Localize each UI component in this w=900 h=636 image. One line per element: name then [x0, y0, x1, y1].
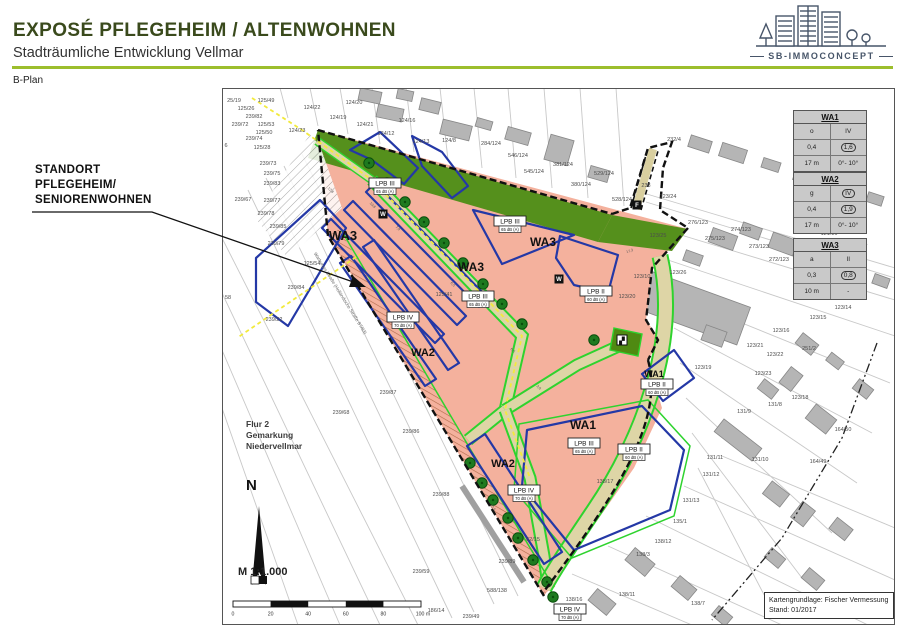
parcel-number: 164/50	[835, 427, 852, 433]
parcel-number: 239/84	[288, 285, 305, 291]
credit-line: Stand: 01/2017	[769, 606, 889, 616]
legend-cell: 0,3	[794, 268, 830, 283]
noise-db-label: 60 dB (A)	[625, 455, 643, 460]
zone-label-wa2: WA2	[491, 458, 515, 470]
legend-cell: 10 m	[794, 284, 830, 299]
parcel-number: 131/10	[752, 457, 769, 463]
parcel-number: 131/12	[703, 472, 720, 478]
parcel-number: 138/3	[636, 552, 650, 558]
parcel-number: 239/85	[270, 224, 287, 230]
annotation-line: PFLEGEHEIM/	[35, 178, 152, 193]
noise-db-label: 65 dB (A)	[575, 449, 593, 454]
map-credit-box: Kartengrundlage: Fischer Vermessung Stan…	[764, 592, 894, 619]
logo-line-right	[879, 56, 893, 57]
annotation-line: SENIORENWOHNEN	[35, 193, 152, 208]
parcel-number: 273/123	[749, 244, 769, 250]
parcel-number: 239/82	[246, 114, 263, 120]
parcel-number: 125/49	[258, 98, 275, 104]
parcel-number: 124/12	[378, 131, 395, 137]
credit-line: Kartengrundlage: Fischer Vermessung	[769, 596, 889, 606]
legend-cell: o	[794, 124, 830, 139]
scale-tick: 40	[305, 612, 311, 618]
parcel-number: 239/59	[413, 569, 430, 575]
legend-cell: 1,6	[830, 140, 867, 155]
parcel-number: 123/16	[773, 328, 790, 334]
header-divider	[12, 66, 893, 69]
parcel-number: 284/124	[481, 141, 501, 147]
scale-tick: 80	[381, 612, 387, 618]
scale-bar	[233, 601, 421, 607]
parcel-number: 123/19	[695, 365, 712, 371]
legend-table-wa2: WA2gIV0,41,917 m0°- 10°	[793, 172, 867, 234]
page-title: EXPOSÉ PFLEGEHEIM / ALTENWOHNEN	[13, 20, 396, 42]
noise-db-label: 70 dB (A)	[515, 496, 533, 501]
legend-cell: 0,4	[794, 140, 830, 155]
parcel-number: 239/77	[264, 198, 281, 204]
parcel-number: 239/75	[264, 171, 281, 177]
parcel-number: 123/25	[650, 233, 667, 239]
standort-annotation: STANDORT PFLEGEHEIM/ SENIORENWOHNEN	[35, 163, 152, 208]
legend-table-title: WA1	[794, 111, 866, 124]
page-subtitle: Stadträumliche Entwicklung Vellmar	[13, 45, 244, 61]
legend-cell: 0°- 10°	[830, 156, 867, 171]
parcel-number: 138/7	[691, 601, 705, 607]
parcel-number: 131/11	[707, 455, 723, 461]
noise-db-label: 70 dB (A)	[394, 323, 412, 328]
parcel-number: 123/18	[792, 395, 809, 401]
parcel-number: 239/74	[246, 136, 263, 142]
parcel-number: 123/15	[810, 315, 827, 321]
flur-line: Flur 2	[246, 419, 302, 430]
legend-cell: 1,9	[830, 202, 867, 217]
legend-table-title: WA3	[794, 239, 866, 252]
noise-box-label: LPB IV	[514, 488, 535, 495]
footpath-marker-icon: F	[635, 203, 639, 209]
playground-icon: ▞	[618, 336, 625, 345]
noise-box-label: LPB III	[375, 181, 395, 188]
noise-box-label: LPB III	[468, 294, 488, 301]
parcel-number: 239/89	[499, 559, 516, 565]
parcel-number: 528/124	[612, 197, 632, 203]
parcel-number: 125/53	[258, 122, 275, 128]
parcel-number: 239/83	[264, 181, 281, 187]
parcel-number: 239/78	[258, 211, 275, 217]
parcel-number: 545/124	[524, 169, 544, 175]
parcel-number: 164/49	[810, 459, 827, 465]
parcel-number: 138/16	[566, 597, 583, 603]
zone-label-wa1: WA1	[644, 369, 664, 379]
section-label: B-Plan	[13, 75, 43, 86]
parcel-number: 25/19	[227, 98, 241, 104]
parcel-number: 381/124	[553, 162, 573, 168]
parcel-number: 276/123	[688, 220, 708, 226]
legend-cell: IV	[830, 186, 867, 201]
legend-table-title: WA2	[794, 173, 866, 186]
legend-cell: 0,8	[830, 268, 867, 283]
parcel-number: 239/68	[333, 410, 350, 416]
scale-tick: 0	[232, 612, 235, 618]
plan-area-graphics	[237, 98, 877, 620]
parcel-number: 238	[641, 183, 650, 189]
parcel-number: 131/9	[737, 409, 751, 415]
parcel-number: 529/124	[594, 171, 614, 177]
noise-db-label: 65 dB (A)	[501, 227, 519, 232]
zone-label-wa1: WA1	[570, 418, 596, 432]
parcel-number: 546/124	[508, 153, 528, 159]
parcel-number: 124/16	[399, 118, 416, 124]
scale-tick: 100 m	[416, 612, 430, 618]
zone-label-wa3: WA3	[530, 235, 556, 249]
noise-db-label: 60 dB (A)	[648, 390, 666, 395]
noise-box-label: LPB III	[500, 219, 520, 226]
parcel-number: 239/86	[403, 429, 420, 435]
parcel-number: 123/24	[660, 194, 677, 200]
parcel-number: 58	[225, 295, 231, 301]
flur-line: Niedervellmar	[246, 441, 302, 452]
parcel-number: 124/8	[442, 138, 456, 144]
noise-db-label: 65 dB (A)	[376, 189, 394, 194]
parcel-number: 239/79	[268, 241, 285, 247]
logo-buildings-icon	[754, 2, 889, 48]
parcel-number: 239/73	[260, 161, 277, 167]
parcel-number: 274/123	[731, 227, 751, 233]
noise-box-label: LPB II	[648, 382, 666, 389]
parcel-number: 588/138	[487, 588, 507, 594]
legend-cell: 17 m	[794, 156, 830, 171]
noise-box-label: LPB IV	[393, 315, 414, 322]
noise-box-label: LPB III	[574, 441, 594, 448]
parcel-number: 131/13	[683, 498, 700, 504]
parcel-number: 138/11	[619, 592, 635, 598]
parcel-number: 125/41	[436, 292, 453, 298]
legend-cell: -	[830, 284, 867, 299]
parcel-number: 275/123	[705, 236, 725, 242]
turning-area-icon: W	[556, 277, 562, 283]
legend-table-wa3: WA3aII0,30,810 m-	[793, 238, 867, 300]
flur-label: Flur 2 Gemarkung Niedervellmar	[246, 419, 302, 452]
logo-line-left	[750, 56, 764, 57]
parcel-number: 123/23	[755, 371, 772, 377]
parcel-number: 124/22	[304, 105, 321, 111]
noise-box-label: LPB IV	[560, 607, 581, 614]
parcel-number: 123/26	[670, 270, 687, 276]
legend-cell: a	[794, 252, 830, 267]
annotation-line: STANDORT	[35, 163, 152, 178]
parcel-number: 124/21	[357, 122, 374, 128]
noise-db-label: 65 dB (A)	[469, 302, 487, 307]
parcel-number: 251/2	[802, 346, 816, 352]
north-label: N	[246, 477, 257, 494]
flur-line: Gemarkung	[246, 430, 302, 441]
scale-text: M 1:1.000	[238, 566, 288, 578]
zone-label-wa2: WA2	[411, 347, 435, 359]
legend-cell: IV	[830, 124, 867, 139]
noise-db-label: 70 dB (A)	[561, 615, 579, 620]
parcel-number: 239/88	[433, 492, 450, 498]
parcel-number: 239/87	[380, 390, 397, 396]
parcel-number: 123/22	[767, 352, 784, 358]
parcel-number: 124/13	[413, 139, 430, 145]
parcel-number: 239/49	[463, 614, 480, 620]
legend-cell: 0,4	[794, 202, 830, 217]
legend-cell: g	[794, 186, 830, 201]
legend-cell: 0°- 10°	[830, 218, 867, 233]
parcel-number: 123/20	[619, 294, 636, 300]
parcel-number: 131/8	[768, 402, 782, 408]
parcel-number: 124/19	[330, 115, 347, 121]
parcel-number: 239/67	[235, 197, 252, 203]
parcel-number: 125/26	[238, 106, 255, 112]
turning-area-icon: W	[380, 212, 386, 218]
parcel-number: 135/1	[673, 519, 687, 525]
parcel-number: 123/14	[835, 305, 852, 311]
scale-tick: 20	[268, 612, 274, 618]
parcel-number: 6	[224, 143, 227, 149]
noise-db-label: 60 dB (A)	[587, 297, 605, 302]
noise-box-label: LPB II	[587, 289, 605, 296]
zone-label-wa3: WA3	[458, 260, 484, 274]
parcel-number: 138/12	[655, 539, 672, 545]
logo-text: SB-IMMOCONCEPT	[768, 51, 874, 61]
noise-box-label: LPB II	[625, 447, 643, 454]
parcel-number: 124/23	[289, 128, 306, 134]
parcel-number: 232/4	[667, 137, 681, 143]
parcel-number: 124/20	[346, 100, 363, 106]
parcel-number: 62/15	[526, 537, 540, 543]
parcel-number: 138/17	[597, 479, 614, 485]
parcel-number: 123/10	[634, 274, 651, 280]
scale-tick: 60	[343, 612, 349, 618]
zone-label-wa3: WA3	[329, 228, 357, 243]
parcel-number: 380/124	[571, 182, 591, 188]
parcel-number: 123/21	[747, 343, 764, 349]
legend-table-wa1: WA1oIV0,41,617 m0°- 10°	[793, 110, 867, 172]
legend-cell: II	[830, 252, 867, 267]
legend-cell: 17 m	[794, 218, 830, 233]
parcel-number: 125/28	[254, 145, 271, 151]
parcel-number: 239/22	[266, 317, 283, 323]
parcel-number: 239/72	[232, 122, 249, 128]
company-logo: SB-IMMOCONCEPT	[750, 2, 893, 61]
parcel-number: 272/123	[769, 257, 789, 263]
